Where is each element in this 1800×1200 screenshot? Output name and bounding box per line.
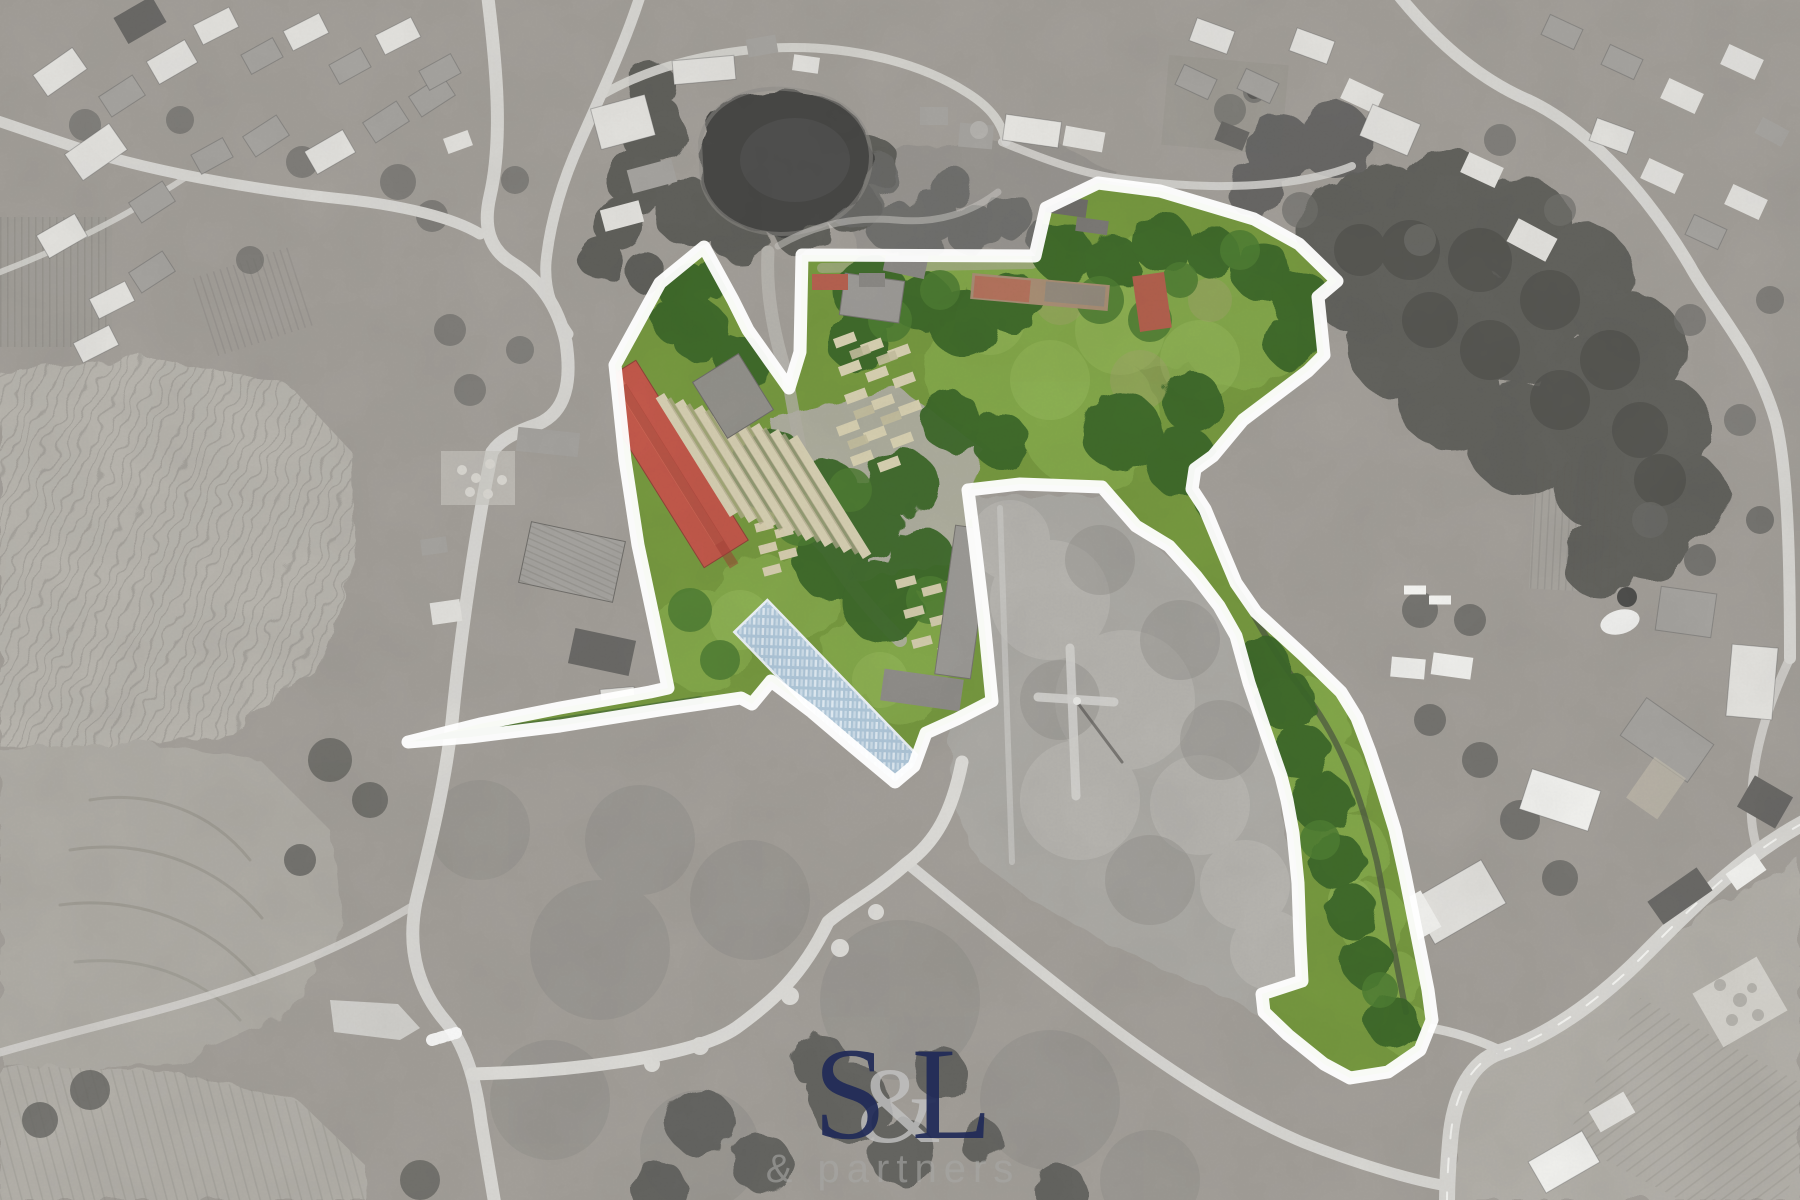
photo-texture [0,0,1800,1200]
fine-grain [0,0,1800,1200]
map-canvas: & S L & partners [0,0,1800,1200]
watermark-tagline: & partners [766,1147,1021,1191]
aerial-photo: & S L & partners [0,0,1800,1200]
watermark-letter-l: L [912,1020,993,1167]
watermark-letter-s: S [813,1020,886,1167]
